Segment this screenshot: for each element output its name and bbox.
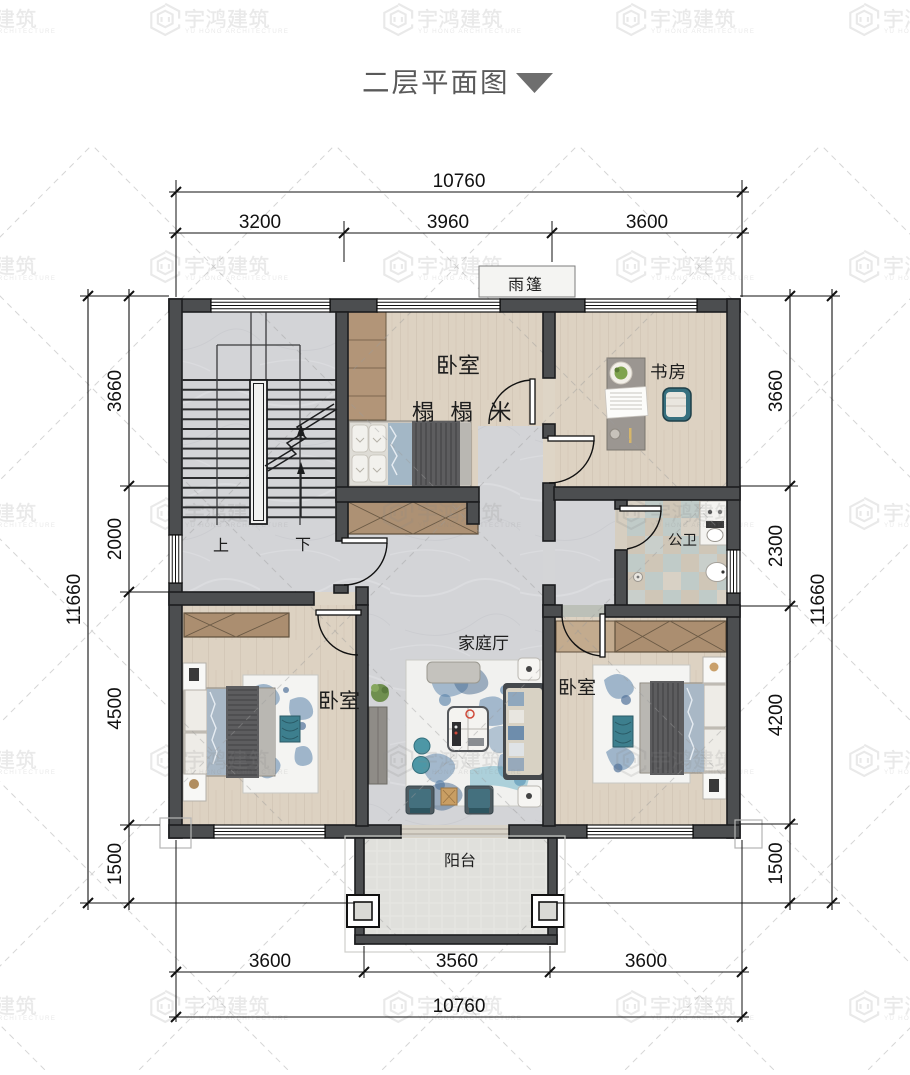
- svg-text:1500: 1500: [105, 843, 126, 885]
- svg-text:4500: 4500: [105, 687, 126, 729]
- svg-text:3600: 3600: [626, 212, 668, 233]
- svg-text:3660: 3660: [105, 370, 126, 412]
- svg-text:2300: 2300: [766, 525, 787, 567]
- svg-text:3560: 3560: [436, 951, 478, 972]
- svg-text:1500: 1500: [766, 842, 787, 884]
- svg-text:3960: 3960: [427, 212, 469, 233]
- svg-text:10760: 10760: [433, 996, 486, 1017]
- svg-text:3600: 3600: [249, 951, 291, 972]
- svg-text:3600: 3600: [625, 951, 667, 972]
- svg-text:11660: 11660: [808, 574, 829, 625]
- svg-text:4200: 4200: [766, 694, 787, 736]
- svg-text:3200: 3200: [239, 212, 281, 233]
- svg-text:2000: 2000: [105, 518, 126, 560]
- svg-text:3660: 3660: [766, 370, 787, 412]
- svg-text:11660: 11660: [64, 574, 85, 625]
- svg-text:10760: 10760: [433, 171, 486, 192]
